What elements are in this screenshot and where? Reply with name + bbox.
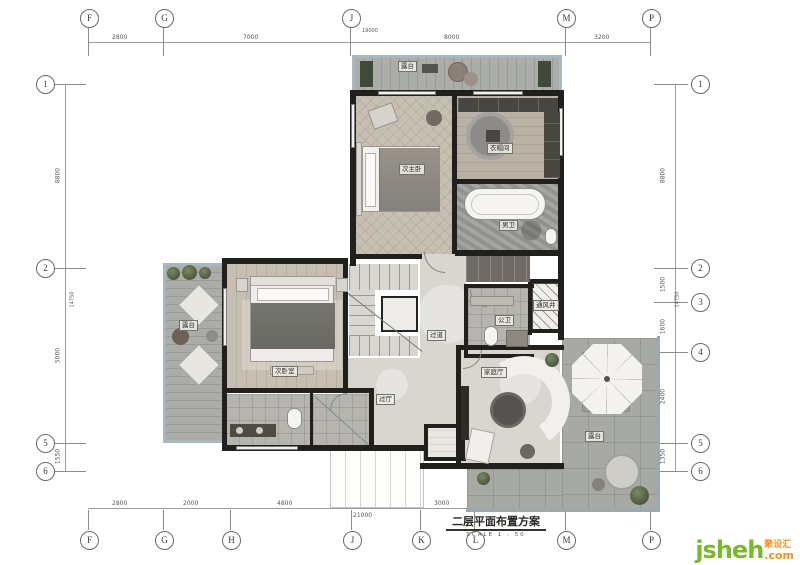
terrace-chair (464, 72, 478, 86)
grid-bubble-top-G: G (155, 9, 174, 28)
grid-bubble-top-F: F (80, 9, 99, 28)
grid-tick (88, 27, 89, 56)
wall (350, 254, 422, 259)
logo-brand-text: jsheh (695, 539, 763, 561)
window (473, 91, 523, 95)
grid-bubble-top-J: J (342, 9, 361, 28)
room-label-terrace-left: 露台 (179, 320, 198, 331)
grid-tick (420, 510, 421, 530)
window (351, 104, 355, 148)
wall (222, 258, 227, 450)
room-label-hall: 过厅 (376, 394, 395, 405)
grid-bubble-right-3: 3 (691, 293, 710, 312)
bed-pillows (257, 288, 329, 301)
bed-pillows (365, 153, 376, 207)
grid-tick (230, 510, 231, 530)
dim-text: 1500 (660, 270, 667, 300)
round-lounge (604, 454, 640, 490)
nightstand (336, 278, 348, 292)
storage-closet (466, 256, 530, 282)
grid-tick (54, 268, 86, 269)
room-label-second-bedroom: 次卧室 (272, 366, 298, 377)
wall (222, 258, 348, 264)
master-bed (362, 146, 440, 212)
side-table (206, 330, 218, 342)
dim-text: 3200 (594, 34, 609, 41)
terrace-edge (466, 509, 660, 512)
terrace-edge (352, 55, 355, 95)
umbrella-pole (604, 376, 610, 382)
plant (182, 265, 197, 280)
drawing-scale: SCALE 1 : 50 (446, 531, 546, 539)
grid-tick (351, 510, 352, 530)
wall (452, 96, 457, 254)
wall (528, 279, 564, 283)
grid-bubble-bottom-K: K (412, 531, 431, 550)
grid-tick (565, 27, 566, 56)
room-label-corridor: 过道 (427, 330, 446, 341)
coffee-table (490, 392, 526, 428)
plant (545, 353, 559, 367)
terrace-edge (163, 263, 166, 443)
scale-value: 1 : 50 (498, 532, 526, 538)
dim-text: 7000 (243, 34, 258, 41)
grid-tick (88, 510, 89, 530)
ottoman (486, 130, 500, 142)
dim-text-overall: 14750 (70, 285, 77, 315)
wardrobe (458, 98, 558, 112)
toilet (545, 228, 557, 245)
dim-text: 8800 (55, 161, 62, 191)
wall (528, 279, 532, 335)
room-label-master-bedroom: 次主卧 (399, 164, 425, 175)
wardrobe (544, 112, 560, 178)
second-bed (250, 276, 334, 362)
terrace-edge (559, 55, 562, 95)
planter (538, 61, 551, 87)
grid-tick (654, 302, 688, 303)
sink (256, 427, 263, 434)
dim-text-overall: 19000 (362, 28, 378, 35)
window (236, 446, 298, 450)
grid-bubble-top-M: M (557, 9, 576, 28)
vanity (506, 330, 528, 347)
dim-line-right (675, 84, 676, 471)
grid-bubble-right-2: 2 (691, 259, 710, 278)
room-label-master-bath: 男卫 (499, 220, 518, 231)
dim-text: 2800 (112, 34, 127, 41)
stair-void (381, 296, 418, 332)
bathtub-inner (471, 194, 539, 215)
nightstand (236, 278, 248, 292)
bed-blanket (251, 303, 335, 349)
grid-bubble-bottom-H: H (222, 531, 241, 550)
grid-tick (54, 84, 86, 85)
grid-bubble-right-5: 5 (691, 434, 710, 453)
watermark-logo: jsheh 聚设汇 .com (695, 539, 794, 561)
grid-bubble-bottom-F: F (80, 531, 99, 550)
plant (199, 267, 211, 279)
wall (464, 284, 534, 288)
grid-bubble-bottom-P: P (642, 531, 661, 550)
stair-flight-top (349, 264, 418, 290)
wall (222, 388, 374, 393)
terrace-edge (657, 336, 660, 512)
dim-text: 1350 (660, 442, 667, 472)
wall (310, 392, 313, 447)
grid-tick (650, 510, 651, 530)
scale-label: SCALE (466, 532, 494, 538)
dim-text: 2400 (660, 382, 667, 412)
bath-counter (470, 296, 514, 306)
tv-console (461, 386, 469, 440)
wall (424, 424, 428, 460)
grid-bubble-left-1: 1 (36, 75, 55, 94)
wall (369, 388, 374, 448)
grid-bubble-left-5: 5 (36, 434, 55, 453)
dim-text: 4800 (277, 500, 292, 507)
vanity (230, 424, 276, 437)
dim-text-overall: 14750 (675, 285, 682, 315)
dim-text: 1550 (55, 442, 62, 472)
toilet (484, 326, 498, 346)
toilet (287, 408, 302, 429)
drawing-title-block: 二层平面布置方案 SCALE 1 : 50 (446, 515, 546, 539)
grid-bubble-bottom-J: J (343, 531, 362, 550)
bed-headboard (251, 277, 335, 286)
terrace-edge (163, 440, 224, 443)
grid-bubble-left-2: 2 (36, 259, 55, 278)
dim-text: 5000 (55, 341, 62, 371)
planter (360, 61, 373, 87)
grid-tick (163, 510, 164, 530)
grid-bubble-right-4: 4 (691, 343, 710, 362)
window (223, 288, 227, 346)
grid-tick (654, 84, 688, 85)
room-label-terrace-bottom: 露台 (585, 431, 604, 442)
plant (167, 267, 180, 280)
grid-tick (350, 27, 351, 56)
grid-bubble-left-6: 6 (36, 462, 55, 481)
wall (455, 179, 560, 184)
terrace-edge (352, 55, 562, 58)
logo-tld-text: .com (764, 550, 794, 561)
wall (424, 424, 466, 428)
window (378, 91, 436, 95)
terrace-table (422, 64, 438, 73)
dim-line-left (65, 84, 66, 471)
dim-text: 2000 (183, 500, 198, 507)
floorplan-canvas: F G J M P 2800 7000 8000 3200 19000 F G … (0, 0, 800, 565)
pouf (426, 110, 442, 126)
wall (424, 457, 466, 461)
room-label-public-bath: 公卫 (495, 315, 514, 326)
grid-tick (565, 510, 566, 530)
grid-bubble-right-1: 1 (691, 75, 710, 94)
room-label-terrace-top: 露台 (398, 61, 417, 72)
room-label-vent-shaft: 通风井 (533, 300, 559, 311)
room-label-family-hall: 家庭厅 (481, 367, 507, 378)
room-label-cloakroom: 衣帽间 (487, 143, 513, 154)
grid-bubble-bottom-G: G (155, 531, 174, 550)
plant (477, 472, 490, 485)
sink (236, 427, 243, 434)
grid-tick (163, 27, 164, 56)
grid-bubble-right-6: 6 (691, 462, 710, 481)
dim-text: 8800 (660, 161, 667, 191)
logo-stack: 聚设汇 .com (764, 540, 794, 561)
grid-tick (650, 27, 651, 56)
bathtub (464, 188, 546, 220)
dim-text-overall: 21000 (353, 512, 372, 519)
dim-text: 3000 (434, 500, 449, 507)
skylight-outline (330, 450, 424, 508)
dim-text: 2800 (112, 500, 127, 507)
wall (528, 329, 564, 333)
plant (630, 486, 649, 505)
bed-blanket (379, 148, 440, 211)
wall (420, 463, 564, 469)
grid-bubble-top-P: P (642, 9, 661, 28)
dim-text: 1600 (660, 312, 667, 342)
grid-bubble-bottom-M: M (557, 531, 576, 550)
dim-text: 8000 (444, 34, 459, 41)
side-table (592, 478, 605, 491)
drawing-title: 二层平面布置方案 (446, 515, 546, 531)
pouf (520, 444, 535, 459)
